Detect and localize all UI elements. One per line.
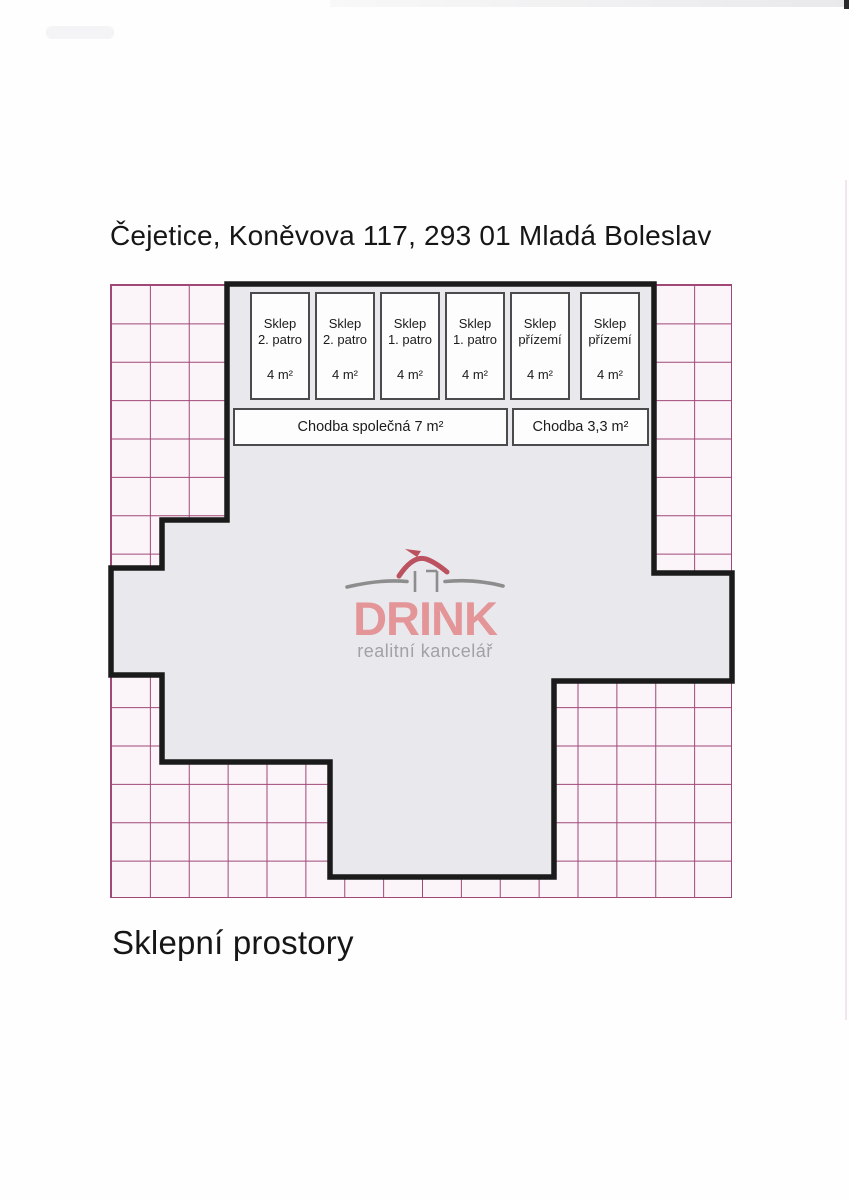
corridor-label: Chodba 3,3 m²: [533, 419, 629, 435]
room-area-label: 4 m²: [267, 367, 293, 383]
room-area-label: 4 m²: [332, 367, 358, 383]
logo-underline-left-icon: [347, 581, 407, 587]
room-name-label: Sklep: [264, 316, 297, 332]
logo-underline-right-icon: [445, 581, 503, 586]
corridor-label: Chodba společná 7 m²: [298, 419, 444, 435]
storage-room-box: Sklep 2. patro 4 m²: [315, 292, 375, 400]
logo-wordmark: DRINK: [337, 597, 513, 640]
plan-caption: Sklepní prostory: [112, 924, 354, 962]
storage-room-box: Sklep 1. patro 4 m²: [445, 292, 505, 400]
room-floor-label: 2. patro: [258, 332, 302, 348]
storage-room-box: Sklep přízemí 4 m²: [510, 292, 570, 400]
room-name-label: Sklep: [394, 316, 427, 332]
logo-subtitle: realitní kancelář: [337, 641, 513, 662]
house-icon: [415, 571, 437, 592]
room-floor-label: přízemí: [588, 332, 631, 348]
room-floor-label: 1. patro: [388, 332, 432, 348]
roof-icon: [399, 558, 447, 576]
room-floor-label: 1. patro: [453, 332, 497, 348]
room-name-label: Sklep: [524, 316, 557, 332]
room-name-label: Sklep: [459, 316, 492, 332]
room-floor-label: 2. patro: [323, 332, 367, 348]
room-name-label: Sklep: [594, 316, 627, 332]
storage-room-box: Sklep 2. patro 4 m²: [250, 292, 310, 400]
storage-room-box: Sklep 1. patro 4 m²: [380, 292, 440, 400]
room-area-label: 4 m²: [462, 367, 488, 383]
room-floor-label: přízemí: [518, 332, 561, 348]
corridor-box-shared: Chodba společná 7 m²: [233, 408, 508, 446]
roof-flag-icon: [405, 549, 421, 557]
logo-house-graphic: [337, 548, 513, 592]
agency-logo: DRINK realitní kancelář: [337, 548, 513, 662]
room-area-label: 4 m²: [397, 367, 423, 383]
corridor-box-small: Chodba 3,3 m²: [512, 408, 649, 446]
room-area-label: 4 m²: [597, 367, 623, 383]
scanned-floor-plan-page: Čejetice, Koněvova 117, 293 01 Mladá Bol…: [0, 0, 849, 1200]
room-name-label: Sklep: [329, 316, 362, 332]
storage-room-box: Sklep přízemí 4 m²: [580, 292, 640, 400]
room-area-label: 4 m²: [527, 367, 553, 383]
